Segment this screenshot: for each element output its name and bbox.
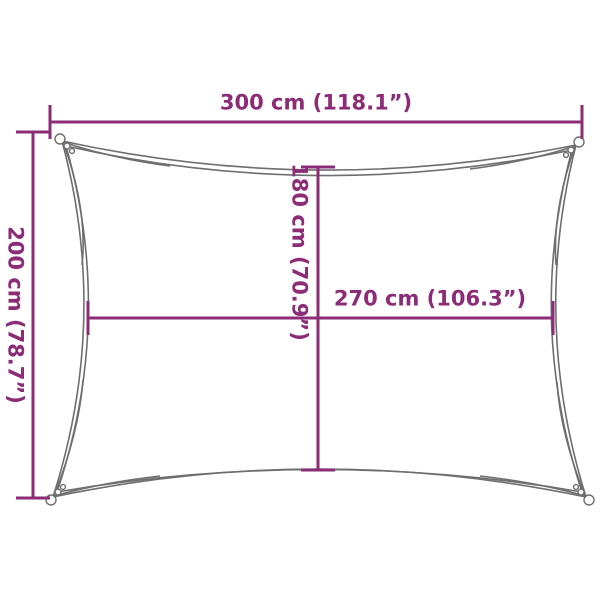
label-inner-width: 270 cm (106.3”) <box>334 289 526 310</box>
sail-corner-bottom-right <box>480 382 594 505</box>
label-inner-height: 180 cm (70.9”) <box>289 163 310 341</box>
label-outer-height: 200 cm (78.7”) <box>5 226 26 404</box>
sail-corner-bottom-left <box>46 380 160 505</box>
sail-bottom-edge <box>53 469 586 497</box>
product-dimension-diagram: 300 cm (118.1”) 200 cm (78.7”) 180 cm (7… <box>0 0 600 600</box>
sail-corner-top-left <box>55 134 170 265</box>
sail-left-edge <box>53 141 84 497</box>
label-outer-width: 300 cm (118.1”) <box>220 93 412 114</box>
sail-corner-top-right <box>470 137 584 265</box>
sail-bottom-edge-inner <box>57 470 582 493</box>
